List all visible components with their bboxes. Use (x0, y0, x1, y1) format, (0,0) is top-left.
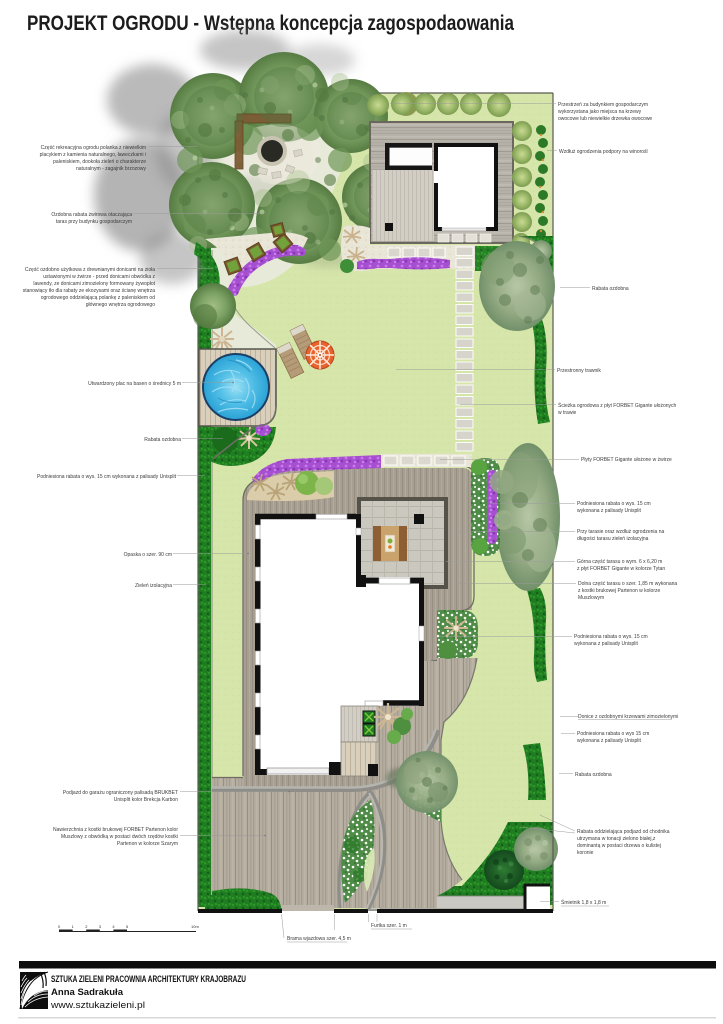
svg-text:SZTUKA ZIELENI PRACOWNIA ARCHI: SZTUKA ZIELENI PRACOWNIA ARCHITEKTURY KR… (51, 974, 246, 984)
svg-text:Furtka szer. 1 m: Furtka szer. 1 m (371, 923, 407, 929)
svg-text:wykonana z palisady Unisplit: wykonana z palisady Unisplit (577, 508, 642, 514)
svg-text:10m: 10m (191, 924, 199, 929)
svg-text:Podjazd do garażu ograniczony: Podjazd do garażu ograniczony palisadą B… (63, 790, 178, 796)
svg-text:wykonana z palisady Unisplit: wykonana z palisady Unisplit (577, 738, 642, 744)
svg-text:Śmietnik 1,8 x 1,8 m: Śmietnik 1,8 x 1,8 m (561, 898, 606, 906)
svg-text:Przestrzeń za budynkiem gospod: Przestrzeń za budynkiem gospodarczym (558, 102, 648, 108)
svg-text:Brama wjazdowa szer. 4,5 m: Brama wjazdowa szer. 4,5 m (287, 936, 351, 942)
svg-text:głównego wnętrza ogrodowego: głównego wnętrza ogrodowego (86, 302, 155, 308)
svg-text:wykonana z palisady Unisplit: wykonana z palisady Unisplit (574, 641, 639, 647)
svg-text:utrzymana w tonacji zielono bi: utrzymana w tonacji zielono białej,z (577, 836, 656, 842)
svg-text:Górna część tarasu o wym. 6 x: Górna część tarasu o wym. 6 x 6,20 m (577, 559, 662, 565)
svg-text:Dolna część tarasu o szer. 1,8: Dolna część tarasu o szer. 1,85 m wykona… (578, 581, 677, 587)
svg-text:Anna Sadrakuła: Anna Sadrakuła (51, 987, 124, 998)
svg-text:Unisplit kolor Brekcja Karbon: Unisplit kolor Brekcja Karbon (114, 797, 178, 803)
svg-text:PROJEKT OGRODU - Wstępna konc: PROJEKT OGRODU - Wstępna koncepcja zagos… (27, 11, 515, 35)
svg-text:lawendy, ze donicami zimozielo: lawendy, ze donicami zimozielony formowa… (33, 281, 155, 287)
svg-text:naturalnym - zagajnik brzozowy: naturalnym - zagajnik brzozowy (76, 166, 147, 172)
svg-text:paleniskiem, dookoła zieleń o: paleniskiem, dookoła zieleń o charakterz… (53, 159, 146, 165)
svg-text:Nawierzchnia z kostki brukowej: Nawierzchnia z kostki brukowej FORBET Pa… (53, 827, 178, 833)
svg-text:Opaska o szer. 90 cm: Opaska o szer. 90 cm (124, 552, 172, 558)
svg-text:owocowe lub niewielkie drzewka: owocowe lub niewielkie drzewka owocowe (558, 116, 652, 122)
svg-text:ustawionymi w żwirze - przed d: ustawionymi w żwirze - przed donicami ob… (43, 274, 155, 280)
svg-text:Zieleń izolacyjna: Zieleń izolacyjna (135, 583, 172, 589)
svg-text:Przy tarasie oraz wzdłuż ogrod: Przy tarasie oraz wzdłuż ogrodzenia na (577, 529, 664, 535)
svg-text:Rabata oddzielająca podjazd od: Rabata oddzielająca podjazd od chodnika (577, 829, 670, 835)
svg-text:z kostki brukowej Partenon w k: z kostki brukowej Partenon w kolorze (578, 588, 660, 594)
svg-text:Podniesiona rabata o wys. 15 c: Podniesiona rabata o wys. 15 cm wykonana… (37, 474, 177, 480)
svg-text:www.sztukazieleni.pl: www.sztukazieleni.pl (50, 1000, 145, 1011)
svg-text:Podniesiona rabata o wys. 15 c: Podniesiona rabata o wys. 15 cm (577, 501, 651, 507)
svg-text:Część rekreacyjna ogrodu polan: Część rekreacyjna ogrodu polanka z niewi… (41, 145, 146, 151)
svg-text:ogrodowego oddzielającą polank: ogrodowego oddzielającą polankę z paleni… (41, 295, 155, 301)
svg-text:w trawie: w trawie (558, 410, 577, 416)
svg-text:Donice z ozdobnymi krzewami zi: Donice z ozdobnymi krzewami zimozielonym… (578, 714, 678, 720)
svg-text:Ozdobna rabata żwirowa otaczaj: Ozdobna rabata żwirowa otaczająca (51, 212, 132, 218)
svg-text:Przestronny trawnik: Przestronny trawnik (557, 368, 601, 374)
svg-text:koronie: koronie (577, 850, 594, 856)
svg-text:Część ozdobno użytkowa z drewn: Część ozdobno użytkowa z drewnianymi don… (25, 267, 155, 273)
svg-text:Muszlowym: Muszlowym (578, 595, 604, 601)
svg-text:wykorzystana jako miejsca na k: wykorzystana jako miejsca na krzewy (558, 109, 642, 115)
svg-text:z płyt FORBET Gigante w kolorz: z płyt FORBET Gigante w kolorze Tytan (577, 566, 665, 572)
svg-text:dominantą w postaci drzewa o k: dominantą w postaci drzewa o kulistej (577, 843, 661, 849)
svg-text:placykiem z kamienia naturalne: placykiem z kamienia naturalnego, ławecz… (40, 152, 146, 158)
svg-text:Podniesiona rabata o wys 15 cm: Podniesiona rabata o wys 15 cm (577, 731, 649, 737)
svg-text:Rabata ozdobna: Rabata ozdobna (575, 772, 612, 778)
svg-text:Podniesiona rabata o wys. 15 c: Podniesiona rabata o wys. 15 cm (574, 634, 648, 640)
svg-text:Rabata ozdobna: Rabata ozdobna (592, 286, 629, 292)
svg-text:Ścieżka ogrodowa z płyt FORBET: Ścieżka ogrodowa z płyt FORBET Gigante u… (558, 401, 677, 409)
svg-text:stanowiący tło dla rabaty ze e: stanowiący tło dla rabaty ze ekozysami o… (23, 288, 156, 294)
svg-text:Rabata ozdobna: Rabata ozdobna (144, 437, 181, 443)
svg-text:Utwardzony plac na basen o śre: Utwardzony plac na basen o średnicy 5 m (88, 381, 181, 387)
svg-text:taras przy budynku gospodarczy: taras przy budynku gospodarczym (56, 219, 132, 225)
svg-text:Wzdłuż ogrodzenia podpory na w: Wzdłuż ogrodzenia podpory na winorośl (559, 149, 648, 155)
svg-text:Muszlowy z obwódką w postaci d: Muszlowy z obwódką w postaci dwóch rzędó… (61, 834, 178, 840)
svg-text:długości tarasu zieleń izolacy: długości tarasu zieleń izolacyjna (577, 536, 649, 542)
svg-text:Płyty FORBET Gigante ułożone w: Płyty FORBET Gigante ułożone w żwirze (581, 457, 672, 463)
svg-text:Partenon w kolorze Szarym: Partenon w kolorze Szarym (117, 841, 178, 847)
